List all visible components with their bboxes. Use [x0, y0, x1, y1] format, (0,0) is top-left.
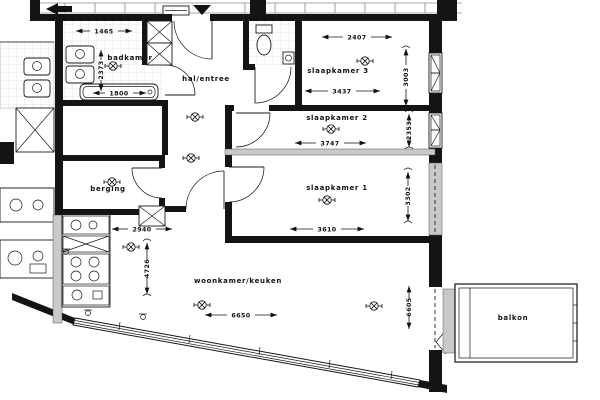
room-label-slaapkamer1: slaapkamer 1: [306, 184, 368, 192]
slaapkamer2-door: [236, 113, 270, 147]
neighbour-washbasin: [24, 80, 50, 97]
dimension-slaapkamer2-diepte: 2353: [405, 110, 413, 149]
dimension-hal-breedte: 2940: [112, 226, 172, 233]
room-label-slaapkamer2: slaapkamer 2: [306, 114, 368, 122]
socket-icon: [84, 310, 92, 315]
kitchen-block: [62, 214, 110, 307]
shaft-box: [139, 206, 165, 226]
room-label-berging: berging: [90, 185, 126, 193]
ceiling-light-icon: [183, 154, 199, 162]
toilet: [256, 25, 272, 55]
berging-door: [132, 168, 162, 198]
gallery-railing-posts: [65, 3, 425, 13]
dim-label: 1465: [94, 28, 113, 35]
window-slaapkamer1: [429, 163, 442, 235]
neighbour-washbasin: [24, 58, 50, 75]
dim-label: 3747: [320, 140, 339, 147]
dimension-slaapkamer3-breedte-2: 3437: [305, 88, 380, 95]
diagonal-window-band: [73, 318, 420, 387]
dim-label: 4726: [144, 259, 151, 278]
ceiling-light-icon: [323, 125, 339, 133]
dim-label: 3003: [403, 67, 410, 86]
ceiling-light-icon: [194, 301, 210, 309]
neighbour-shaft: [16, 108, 54, 152]
ceiling-light-icon: [366, 302, 382, 310]
dim-label: 1800: [109, 90, 128, 97]
kitchen-cabinet: [63, 236, 109, 252]
doormat: [163, 6, 189, 15]
dimension-slaapkamer3-breedte: 2407: [322, 34, 392, 41]
floor-plan-canvas: 1465 2373 1800 2407 3003 3437: [0, 0, 600, 400]
dimension-slaapkamer2-breedte: 3747: [295, 140, 366, 147]
dim-label: 3610: [317, 226, 336, 233]
room-label-slaapkamer3: slaapkamer 3: [307, 67, 369, 75]
balcony: [443, 284, 577, 362]
dim-label: 2373: [98, 60, 105, 79]
ceiling-light-icon: [319, 196, 335, 204]
room-label-badkamer: badkamer: [107, 54, 152, 62]
window-slaapkamer3: [429, 53, 442, 93]
dim-label: 3302: [405, 186, 412, 205]
neighbour-kitchen-unit: [0, 188, 54, 278]
washbasin: [66, 66, 94, 83]
dim-label: 2407: [347, 34, 366, 41]
dim-label: 2940: [132, 226, 151, 233]
cooktop: [63, 254, 109, 284]
gallery-walkway: [30, 3, 462, 15]
window-slaapkamer2: [429, 113, 442, 148]
room-label-woonkamer: woonkamer/keuken: [194, 277, 282, 285]
kitchen-sink-2: [63, 286, 109, 305]
socket-icon: [139, 314, 147, 319]
dim-label: 2353: [406, 121, 413, 140]
ceiling-light-icon: [357, 57, 373, 65]
dimension-keuken-diepte: 4726: [143, 239, 151, 296]
slaapkamer1-door: [229, 167, 264, 202]
dim-label: 6605: [406, 297, 413, 316]
corner-basin: [283, 52, 294, 64]
entrance-door: [174, 21, 212, 59]
woonkamer-door: [186, 171, 224, 209]
floor-plan-page: 1465 2373 1800 2407 3003 3437: [0, 0, 600, 400]
neighbour-facade-wall: [12, 293, 75, 325]
ceiling-light-icon: [187, 113, 203, 121]
dim-label: 3437: [332, 88, 351, 95]
ceiling-light-icon: [123, 243, 139, 251]
dimension-slaapkamer3-diepte: 3003: [402, 46, 410, 108]
washbasin: [66, 46, 94, 63]
neighbour-wall: [0, 142, 14, 164]
room-label-balkon: balkon: [498, 314, 529, 322]
room-label-hal: hal/entree: [182, 75, 230, 83]
dimension-slaapkamer1-diepte: 3302: [404, 168, 412, 223]
dim-label: 6650: [231, 312, 250, 319]
dimension-slaapkamer1-breedte: 3610: [290, 226, 364, 233]
entrance-arrow-icon: [193, 5, 211, 15]
kitchen-sink: [63, 216, 109, 234]
balcony-threshold: [443, 289, 455, 353]
light-partition-wall: [225, 149, 435, 155]
dimension-woonkamer-diepte: 6605: [406, 286, 413, 329]
left-facade-light-wall: [53, 215, 62, 323]
dimension-woonkamer-breedte: 6650: [205, 312, 277, 319]
toilet-door: [255, 67, 291, 103]
